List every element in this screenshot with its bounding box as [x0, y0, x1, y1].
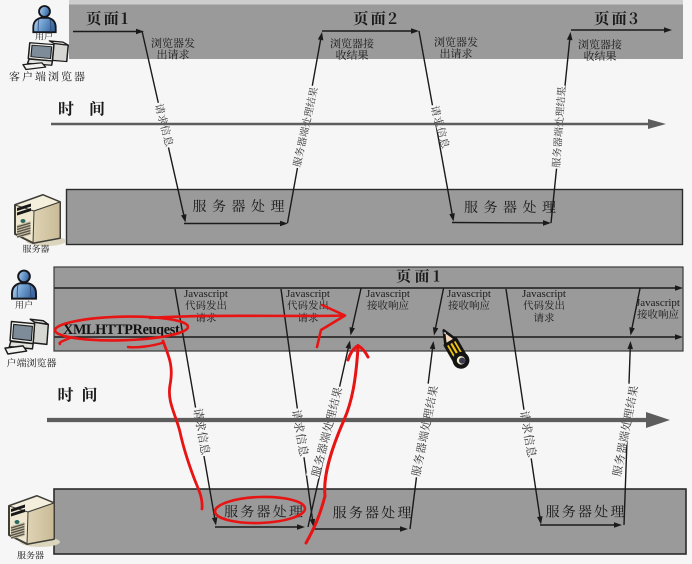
svg-text:Javascript: Javascript	[522, 288, 566, 300]
svg-text:Javascript: Javascript	[447, 288, 491, 300]
svg-text:Javascript: Javascript	[184, 288, 228, 300]
svg-text:Javascript: Javascript	[636, 297, 680, 309]
svg-text:Javascript: Javascript	[286, 288, 330, 300]
svg-text:Javascript: Javascript	[366, 288, 410, 300]
